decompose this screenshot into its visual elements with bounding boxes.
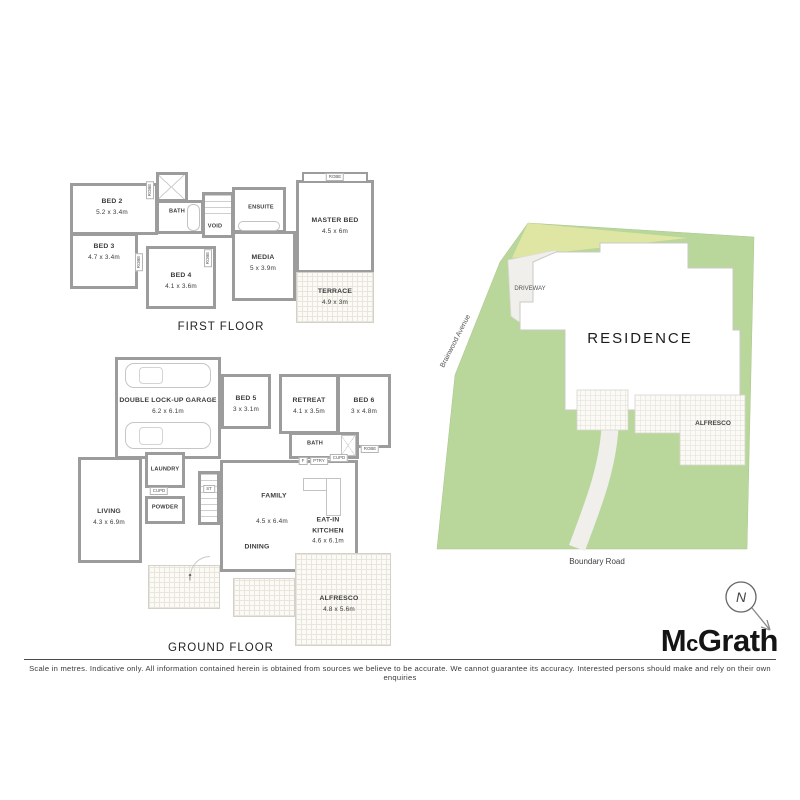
driveway-label: DRIVEWAY [514,286,545,292]
disclaimer-text: Scale in metres. Indicative only. All in… [24,659,776,682]
fridge-chip: F [299,457,308,465]
pantry-chip: PTRY [310,457,328,465]
room-bed3-label: BED 3 4.7 x 3.4m [88,242,120,262]
shower-icon [341,435,356,456]
brand-c: c [686,631,698,656]
residence-label: RESIDENCE [587,330,693,347]
robe-chip: ROBE [135,253,143,271]
terrace-label: TERRACE 4.9 x 3m [318,287,352,307]
room-family-label: FAMILY [261,492,287,503]
room-living-label: LIVING 4.3 x 6.9m [93,507,125,527]
brand-m: M [661,623,686,658]
robe-chip: ROBE [204,249,212,267]
room-retreat-label: RETREAT 4.1 x 3.5m [293,396,326,416]
room-laundry-label: LAUNDRY [151,466,180,475]
door-arc [190,556,210,576]
ground-floor-title: GROUND FLOOR [168,642,274,654]
room-powder-label: POWDER [152,504,178,513]
shower-room [156,172,188,202]
street-boundary-label: Boundary Road [569,557,625,566]
robe-chip: ROBE [361,445,379,453]
room-family-dims: 4.5 x 6.4m [256,517,288,527]
cupboard-chip: CUPD [150,487,168,495]
room-bed4-label: BED 4 4.1 x 3.6m [165,271,197,291]
north-letter: N [736,589,747,605]
entry-arrow-icon: ↑ [187,571,193,583]
site-alfresco-strip [635,395,680,433]
room-master-bed-label: MASTER BED 4.5 x 6m [312,216,359,236]
room-bath-first-label: BATH [169,208,185,217]
car-windshield [139,427,163,445]
room-dining-label: DINING [245,543,270,554]
site-plan: RESIDENCE DRIVEWAY ALFRESCO Brainwood Av… [425,210,785,580]
room-ensuite-label: ENSUITE [248,204,274,213]
brand-logo: McGrath [646,624,778,664]
room-bed5-label: BED 5 3 x 3.1m [233,394,259,414]
room-media-label: MEDIA 5 x 3.9m [250,253,276,273]
room-stairs [198,471,220,525]
car-icon [125,363,211,388]
stairs-icon [205,195,231,217]
room-garage-label: DOUBLE LOCK-UP GARAGE 6.2 x 6.1m [119,396,216,416]
site-alfresco [680,395,745,465]
robe-chip: ROBE [326,173,344,181]
car-icon [125,422,211,449]
cupboard-chip: CUPD [330,454,348,462]
bathtub-icon [187,204,200,231]
room-bath-ground-label: BATH [307,440,323,449]
robe-chip: ROBE [146,181,154,199]
room-stairs-label: ST [203,485,215,493]
bathtub-icon [238,221,280,231]
site-alfresco-label: ALFRESCO [695,420,731,427]
alfresco-step-area [233,578,295,617]
room-bed2-label: BED 2 5.2 x 3.4m [96,197,128,217]
first-floor-title: FIRST FLOOR [178,321,265,333]
room-bed6-label: BED 6 3 x 4.8m [351,396,377,416]
car-windshield [139,367,163,384]
floorplan-page: BED 2 5.2 x 3.4m BATH VOID ENSUITE MEDIA… [0,0,800,800]
kitchen-island [326,478,341,516]
room-kitchen-label: EAT-IN KITCHEN 4.6 x 6.1m [312,516,344,547]
room-void-label: VOID [208,223,222,232]
site-porch [577,390,628,430]
brand-rest: Grath [698,623,778,658]
alfresco-label: ALFRESCO 4.8 x 5.6m [320,594,359,614]
